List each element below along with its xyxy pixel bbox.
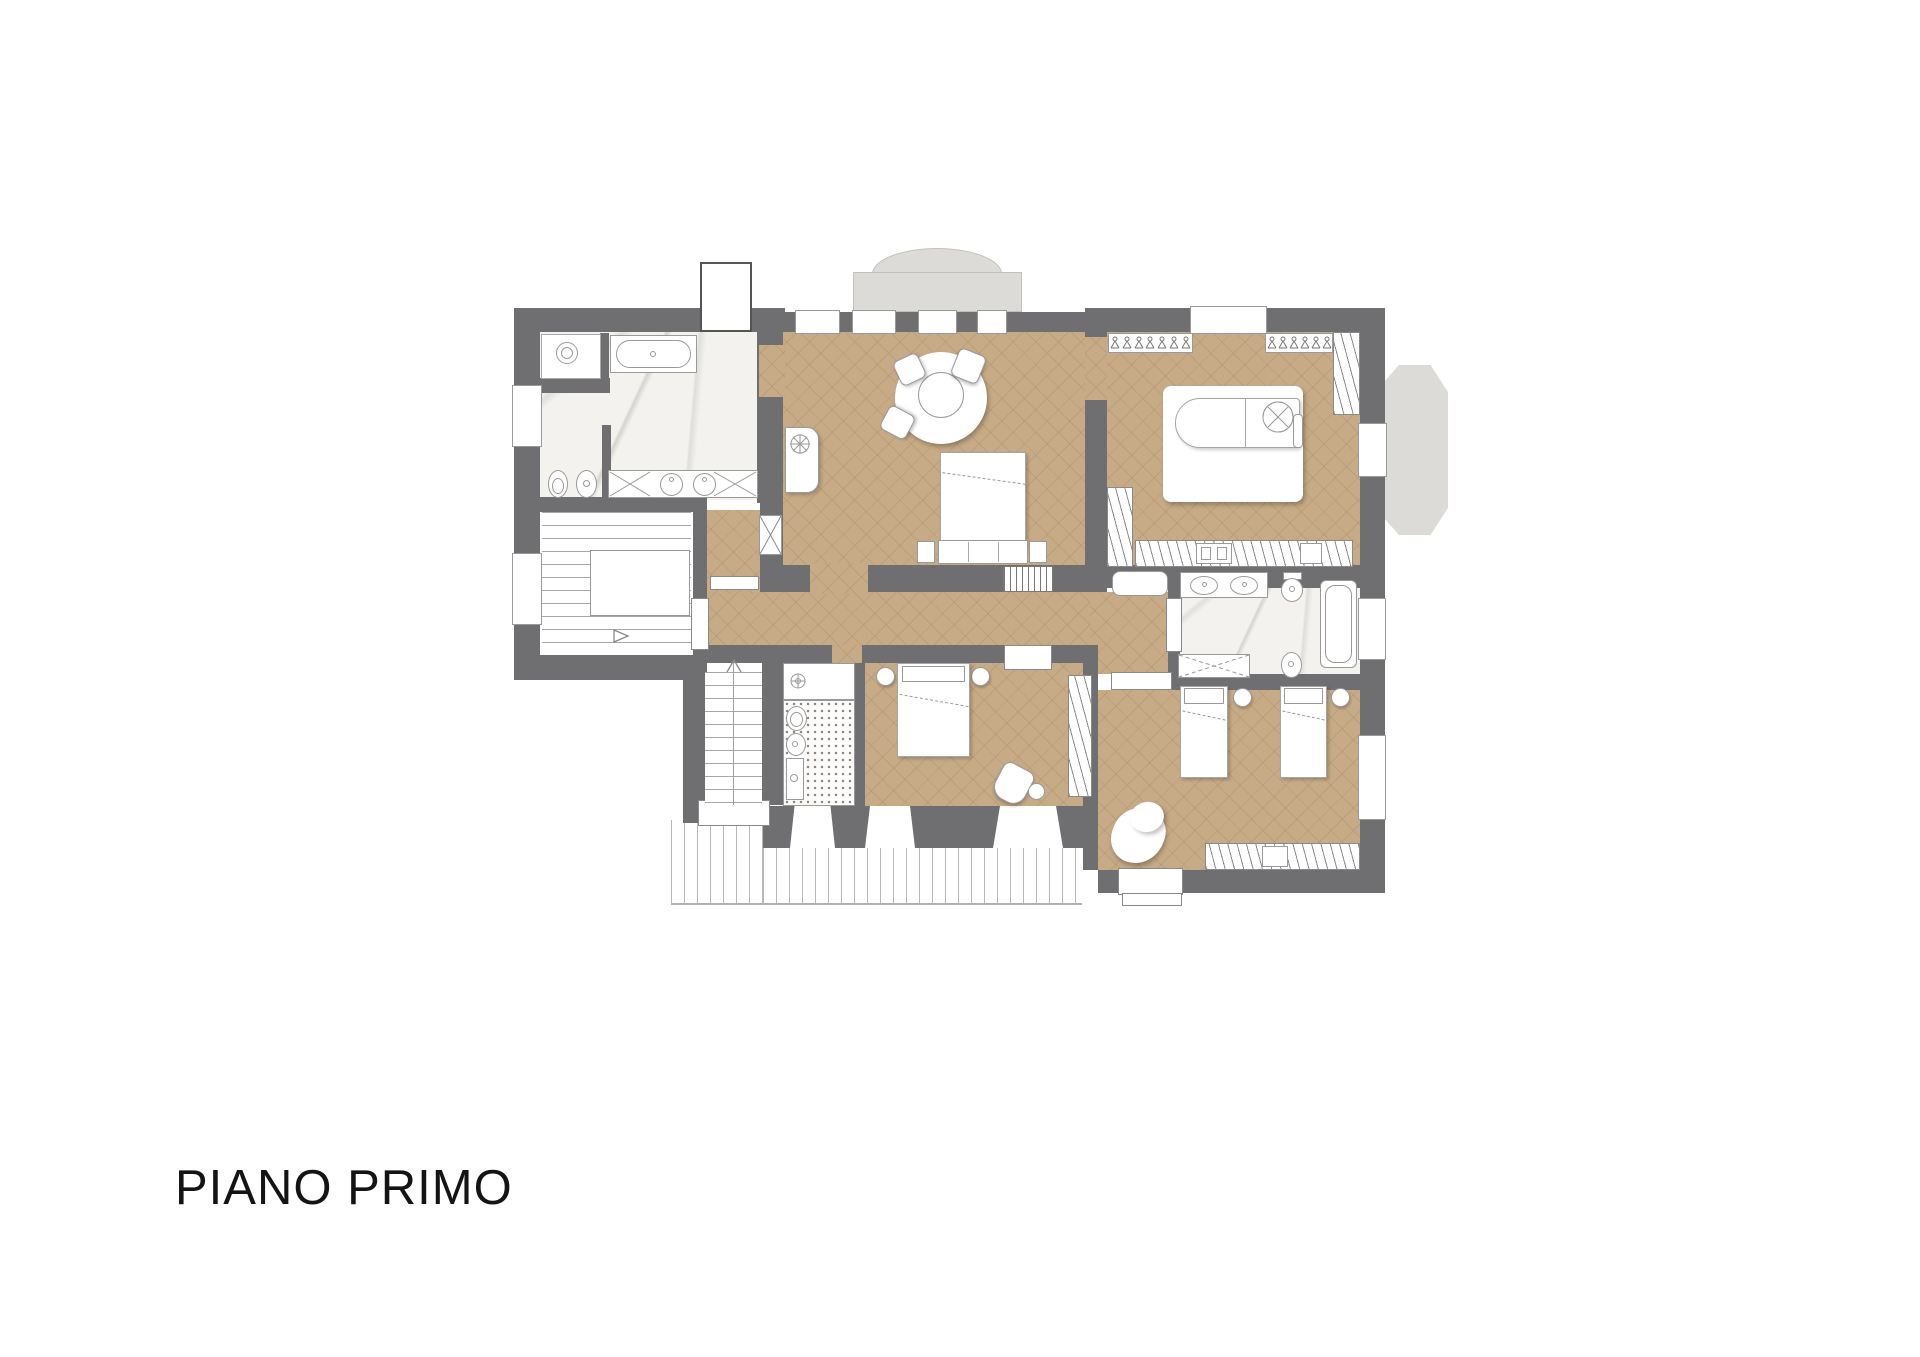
door-corridor-to-master — [810, 563, 868, 594]
master-bed-headboard — [938, 540, 1028, 564]
shower-ensuite — [1178, 654, 1250, 678]
clothes-hanger-icon — [1267, 336, 1277, 350]
wall-stairsdown-east — [762, 652, 783, 805]
vent-fan-icon — [789, 433, 811, 455]
clothes-hanger-icon — [1122, 336, 1132, 350]
door-sill-corridor-north — [710, 576, 759, 590]
wall-bath-stair-divider — [540, 497, 707, 512]
plan-shape — [760, 516, 781, 554]
wall-shower-partition-s — [540, 378, 610, 393]
clothes-hanger-icon — [1157, 336, 1167, 350]
bay-terrace-right — [1378, 365, 1448, 535]
master-headboard-line1 — [968, 542, 969, 562]
shower-drain-inner — [561, 347, 573, 359]
window-master-2 — [852, 310, 896, 334]
stairs-down-centerline — [733, 660, 734, 805]
clothes-hanger-icon — [1311, 336, 1321, 350]
bed-middle-pillow — [902, 666, 965, 682]
step-kids-terrace — [1122, 893, 1182, 906]
door-bay-east — [1358, 423, 1387, 477]
kids-bed-2-headboard — [1284, 688, 1323, 704]
basin-ensuite-2-dot — [1242, 582, 1247, 587]
window-kids-east — [1358, 735, 1386, 820]
door-sill-hallway-kids — [1111, 672, 1172, 690]
wall-smallbath-bedroom-divider — [855, 663, 865, 806]
clothes-hanger-icon — [1278, 336, 1288, 350]
closet-shoe-box-1b — [1217, 547, 1227, 560]
nightstand-master-right — [1029, 541, 1047, 563]
window-bedroom-right-top — [1190, 306, 1267, 334]
clothes-hanger-icon — [1145, 336, 1155, 350]
clothes-hanger-icon — [1300, 336, 1310, 350]
bidet-small-dot — [792, 741, 798, 747]
clothes-hanger-icon — [1169, 336, 1179, 350]
corridor-floor — [705, 592, 1090, 648]
window-west-bath — [512, 385, 542, 447]
master-bed-mattress — [940, 452, 1026, 548]
wardrobe-west-right-bedroom — [1107, 487, 1133, 567]
vanity-x-left — [610, 472, 650, 496]
hallway-floor — [1090, 592, 1168, 674]
terrace-left — [671, 820, 763, 905]
wall-stairblock-south — [514, 655, 707, 680]
window-west-stairwell — [512, 553, 542, 625]
chimney-block — [700, 262, 752, 332]
stairwell-landing — [590, 550, 690, 616]
door-bath-to-master — [759, 345, 785, 397]
wardrobe-hanger-row-right — [1265, 333, 1333, 353]
nightstand-middle-left — [876, 667, 895, 686]
kids-bed-1-headboard — [1184, 688, 1224, 704]
master-headboard-line2 — [998, 542, 999, 562]
wardrobe-corner-ne — [1333, 332, 1360, 415]
window-master-3 — [918, 310, 957, 334]
facade-opening-1 — [790, 806, 835, 848]
clothes-hanger-icon — [1289, 336, 1299, 350]
kids-side-table-1 — [1233, 688, 1252, 707]
basin-ensuite-1-dot — [1202, 582, 1207, 587]
stairs-up-arrow — [725, 658, 743, 674]
closet-kids-divider-box — [1262, 846, 1288, 867]
terrace-main — [763, 848, 1082, 905]
door-master-to-right-bedroom — [1085, 337, 1107, 400]
nightstand-master-left — [917, 541, 935, 563]
bedside-bar-right — [1293, 414, 1303, 448]
duct-shaft — [759, 515, 782, 555]
bidet-ensuite-dot — [1288, 661, 1294, 667]
pinwheel-decor — [1260, 399, 1296, 435]
wardrobe-hanger-row-left — [1108, 333, 1193, 353]
round-table — [918, 372, 964, 418]
toilet-small-seat — [790, 712, 803, 727]
door-ensuite — [1166, 598, 1182, 652]
closet-shoe-box-2 — [1300, 543, 1322, 564]
basin-main-2-dot — [702, 477, 707, 482]
kids-side-table-2 — [1331, 688, 1350, 707]
sink-small-dot — [790, 774, 798, 782]
clothes-hanger-icon — [1134, 336, 1144, 350]
window-ensuite-east — [1358, 598, 1386, 660]
stair-direction-arrow — [612, 628, 632, 644]
bedroom-middle-floor — [863, 663, 1083, 806]
bidet-main-dot — [583, 480, 590, 487]
bathtub-drain — [650, 351, 656, 357]
wardrobe-middle-bedroom — [1068, 675, 1092, 797]
toilet-ensuite-dot — [1289, 586, 1295, 592]
door-corridor-to-middle-bedroom — [832, 645, 862, 663]
window-master-1 — [795, 310, 840, 334]
basin-main-1-dot — [669, 477, 674, 482]
clothes-hanger-icon — [1322, 336, 1332, 350]
floor-title: PIANO PRIMO — [175, 1160, 513, 1216]
facade-opening-2 — [865, 806, 915, 848]
corridor-niche-window — [1004, 645, 1052, 670]
stool-middle — [1028, 783, 1045, 800]
door-kids-south — [1118, 868, 1183, 895]
balcony-top — [853, 272, 1022, 312]
window-master-4 — [977, 310, 1007, 334]
wall-shower-partition-e — [600, 333, 609, 380]
floor-plan-sheet: PIANO PRIMO — [0, 0, 1920, 1357]
toilet-main-seat — [552, 478, 564, 494]
closet-shoe-box-1a — [1201, 547, 1211, 560]
floor-plan-drawing — [0, 0, 1920, 1357]
nightstand-middle-right — [971, 667, 990, 686]
faucet-flower-icon — [789, 672, 807, 690]
facade-opening-3 — [993, 806, 1063, 848]
vanity-x-right — [714, 472, 756, 496]
clothes-hanger-icon — [1181, 336, 1191, 350]
radiator-corridor — [1003, 566, 1053, 592]
hallway-bench — [1112, 571, 1168, 596]
bathtub-ensuite-inner — [1325, 585, 1352, 663]
bed-right-divider — [1245, 399, 1246, 447]
door-stairwell — [691, 598, 709, 650]
clothes-hanger-icon — [1110, 336, 1120, 350]
plan-shape — [1179, 655, 1249, 677]
